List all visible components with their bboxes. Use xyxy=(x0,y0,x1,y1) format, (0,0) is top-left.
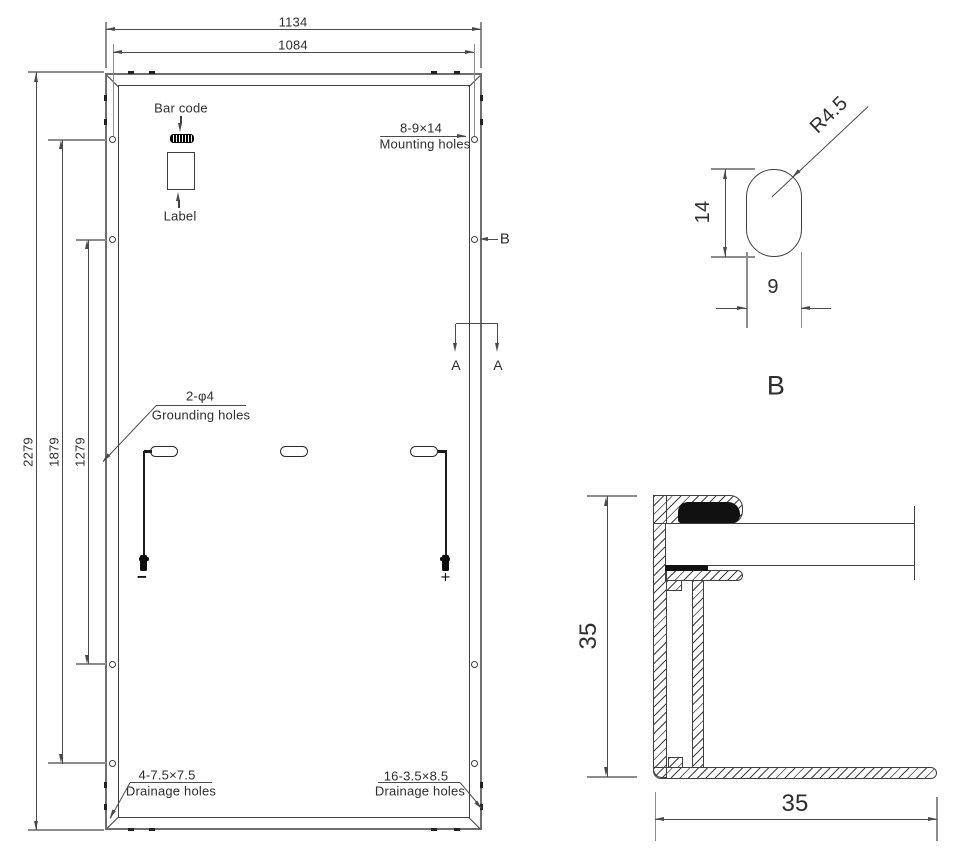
mounting-hole xyxy=(109,136,116,143)
edge-slot xyxy=(480,95,483,101)
glass-panel xyxy=(665,523,915,566)
dim-text-1879: 1879 xyxy=(48,437,61,467)
dim-text-1084: 1084 xyxy=(278,39,308,52)
section-a-bracket xyxy=(455,324,456,344)
profile-cavity-tab-top xyxy=(666,580,682,591)
section-b-line xyxy=(488,239,498,240)
gasket-under-glass xyxy=(665,565,708,571)
technical-drawing-canvas: Bar code Label − + 2-φ4 Grounding holes xyxy=(0,0,960,860)
edge-slot xyxy=(480,119,483,125)
extension-line xyxy=(711,256,755,258)
edge-slot xyxy=(104,119,107,125)
glass-break-line xyxy=(914,506,915,580)
extension-line xyxy=(113,44,115,136)
barcode-label: Bar code xyxy=(154,102,208,115)
extension-line xyxy=(28,71,104,73)
negative-terminal-sign: − xyxy=(137,569,147,586)
mounting-label: Mounting holes xyxy=(380,138,471,151)
dim-text-9: 9 xyxy=(767,277,778,297)
slot-hole-shape xyxy=(746,169,802,257)
section-a-label: A xyxy=(493,358,503,372)
dim-arrow xyxy=(472,27,481,31)
grounding-label: Grounding holes xyxy=(152,408,250,421)
section-b-arrow xyxy=(479,237,488,241)
profile-bottom-flange xyxy=(653,767,937,779)
extension-line xyxy=(48,139,106,141)
dim-text-2279: 2279 xyxy=(22,437,35,467)
positive-cable xyxy=(445,451,447,555)
edge-slot xyxy=(104,95,107,101)
section-a-arrow xyxy=(453,343,457,352)
extension-line xyxy=(746,252,748,328)
dim-arrow xyxy=(34,73,38,82)
positive-connector-collar xyxy=(440,557,450,561)
mounting-hole xyxy=(471,236,478,243)
grounding-spec: 2-φ4 xyxy=(186,390,214,403)
mounting-hole xyxy=(471,661,478,668)
drainage-left-spec: 4-7.5×7.5 xyxy=(138,769,195,782)
dim-arrow xyxy=(655,817,664,821)
dim-arrow xyxy=(85,655,89,664)
junction-box-right xyxy=(410,446,438,458)
edge-slot xyxy=(128,71,134,74)
section-a-arrow xyxy=(495,343,499,352)
dim-line-35h xyxy=(655,819,937,820)
dim-line-2279 xyxy=(36,72,37,830)
dim-text-1134: 1134 xyxy=(279,16,308,29)
dim-line-1879 xyxy=(62,140,63,764)
extension-line xyxy=(801,252,803,328)
dim-arrow xyxy=(723,170,727,179)
radius-leader-arrow xyxy=(792,170,801,179)
edge-slot xyxy=(480,782,483,788)
edge-slot xyxy=(454,828,460,831)
section-a-bracket xyxy=(497,324,498,344)
detail-b-title: B xyxy=(767,373,785,400)
profile-inner-wall xyxy=(692,580,704,768)
extension-line xyxy=(28,829,104,831)
mounting-spec: 8-9×14 xyxy=(400,122,442,135)
extension-line xyxy=(474,44,476,136)
negative-connector-collar xyxy=(139,557,149,561)
dim-arrow xyxy=(723,247,727,256)
dim-arrow xyxy=(85,240,89,249)
dim-arrow xyxy=(106,27,115,31)
dim-arrow xyxy=(59,140,63,149)
dim-arrow xyxy=(113,50,122,54)
label-box xyxy=(167,152,195,190)
extension-line xyxy=(587,776,637,778)
edge-slot xyxy=(149,71,155,74)
label-label: Label xyxy=(164,210,197,223)
edge-slot xyxy=(104,782,107,788)
dim-arrow xyxy=(604,497,608,506)
drainage-right-spec: 16-3.5×8.5 xyxy=(384,770,449,783)
drainage-left-label: Drainage holes xyxy=(126,785,216,798)
edge-slot xyxy=(454,71,460,74)
extension-line xyxy=(587,495,637,497)
dim-text-1279: 1279 xyxy=(74,437,87,467)
section-a-bracket xyxy=(456,323,498,324)
dim-text-35h: 35 xyxy=(781,792,808,816)
extension-line xyxy=(711,168,755,170)
edge-slot xyxy=(128,828,134,831)
section-b-label: B xyxy=(500,232,510,247)
gasket-seal xyxy=(678,502,740,523)
section-a-label: A xyxy=(451,358,461,372)
drainage-right-label: Drainage holes xyxy=(375,785,465,798)
dim-arrow xyxy=(59,754,63,763)
extension-line xyxy=(76,663,106,665)
mounting-hole xyxy=(109,661,116,668)
edge-slot xyxy=(149,828,155,831)
edge-slot xyxy=(104,804,107,810)
mounting-hole xyxy=(109,236,116,243)
radius-text: R4.5 xyxy=(807,93,852,137)
extension-line xyxy=(48,762,106,764)
dim-line-1279 xyxy=(88,240,89,665)
positive-terminal-sign: + xyxy=(441,569,451,586)
junction-box-left xyxy=(150,446,178,458)
label-arrow-line xyxy=(178,200,179,208)
dim-text-35v: 35 xyxy=(577,622,601,649)
barcode xyxy=(170,134,194,143)
profile-glass-lip xyxy=(665,570,743,581)
dim-arrow xyxy=(465,50,474,54)
mounting-hole xyxy=(471,136,478,143)
mounting-hole xyxy=(471,760,478,767)
negative-cable xyxy=(143,451,145,555)
junction-box-middle xyxy=(280,446,308,458)
dim-arrow xyxy=(928,817,937,821)
edge-slot xyxy=(431,71,437,74)
dim-arrow xyxy=(737,306,746,310)
dim-arrow xyxy=(34,821,38,830)
dim-line-14 xyxy=(725,169,726,257)
extension-line xyxy=(76,239,106,241)
barcode-arrow xyxy=(178,123,182,132)
dim-text-14: 14 xyxy=(693,201,713,224)
dim-line-35v xyxy=(607,496,608,778)
mounting-hole xyxy=(109,760,116,767)
dim-arrow xyxy=(604,767,608,776)
edge-slot xyxy=(431,828,437,831)
dim-arrow xyxy=(801,306,810,310)
